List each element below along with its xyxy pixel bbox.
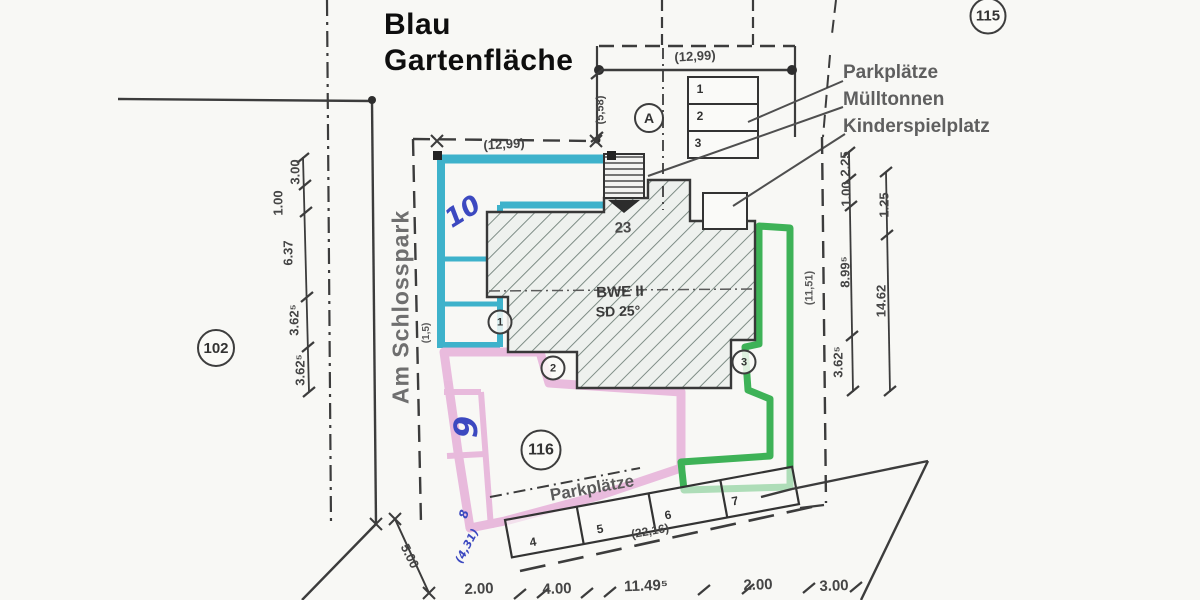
dim-bottom-300: 3.00 [819,578,849,594]
dim-right-3625: 3.62⁵ [832,346,845,377]
legend-muelltonnen: Mülltonnen [843,90,944,109]
building-roof-type: SD 25° [596,303,641,319]
kinderspielplatz-box [703,193,747,229]
top-stall-1: 1 [697,83,704,95]
parcel-102-number: 102 [203,340,228,357]
parcel-115-number: 115 [976,8,1000,25]
dim-right-100: 1.00 [840,181,853,206]
dim-garden-1299: (12,99) [483,136,525,151]
dim-top-1299: (12,99) [674,48,716,63]
bottom-stall-7: 7 [731,495,740,508]
legend-parkplaetze: Parkplätze [843,63,938,82]
parcel-116-number: 116 [528,441,554,459]
dim-558: (5,58) [596,96,607,125]
top-stall-3: 3 [695,137,702,149]
dim-left-100: 1.00 [272,190,285,215]
bottom-stall-4: 4 [529,536,538,549]
annotation-gartenflaeche: Gartenfläche [384,46,573,76]
top-stall-2: 2 [697,110,704,122]
dim-left-3625b: 3.62⁵ [294,354,307,385]
site-plan-scan: Blau Gartenfläche Parkplätze Mülltonnen … [0,0,1200,600]
dim-left-300: 3.00 [289,159,302,184]
dim-bottom-11495: 11.49⁵ [624,578,668,595]
parcel-102-badge: 102 [197,329,235,367]
building-name: BWE II [596,284,644,301]
annotation-blau: Blau [384,10,451,40]
building-number: 23 [614,220,631,236]
dim-bottom-400: 4.00 [542,581,572,597]
unit-2-number: 2 [550,362,556,374]
unit-3-number: 3 [741,356,747,368]
bottom-stall-5: 5 [596,523,605,536]
dim-mid-right: (11,51) [805,271,816,305]
dim-left-637: 6.37 [282,240,295,265]
parcel-116-badge: 116 [521,430,562,471]
dim-bottom-200a: 2.00 [464,581,494,597]
section-a-letter: A [644,110,654,126]
unit-3-badge: 3 [732,350,757,375]
legend-kinderspielplatz: Kinderspielplatz [843,117,990,136]
dim-left-3625a: 3.62⁵ [288,304,301,335]
dim-right-8995: 8.99⁵ [839,256,852,287]
section-a-badge: A [634,103,664,133]
garden-plot-9: 9 [450,416,482,438]
bottom-stall-6: 6 [664,509,673,522]
unit-1-badge: 1 [488,310,513,335]
dim-right-225: 2.25 [839,151,852,176]
dim-street-width: (1,5) [422,323,432,344]
dim-right-1462: 14.62 [875,285,888,318]
street-name: Am Schlosspark [390,210,413,404]
unit-1-number: 1 [497,316,503,328]
unit-2-badge: 2 [541,356,566,381]
dim-bottom-200b: 2.00 [743,577,773,593]
dim-right-125: 1.25 [878,192,891,217]
